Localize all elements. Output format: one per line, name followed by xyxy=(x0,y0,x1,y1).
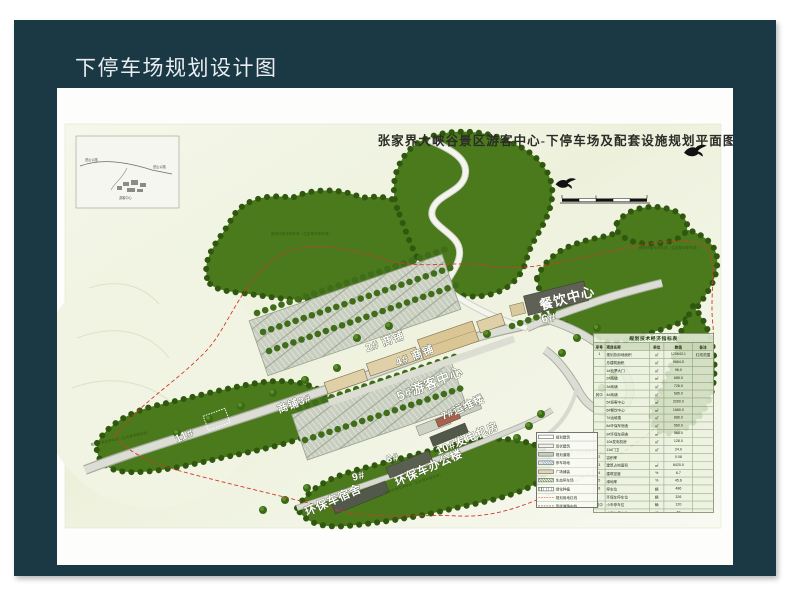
legend-swatch-dash-red xyxy=(538,497,554,498)
table-cell: 单位 xyxy=(650,343,665,350)
legend-item: 规划道路 xyxy=(537,450,597,459)
legend-swatch-solid-gray xyxy=(538,452,554,456)
table-row: 2容积率0.08 xyxy=(594,454,713,462)
annotation: 规划环保车停车场（生态草坪停车场） xyxy=(639,245,700,250)
table-cell: ㎡ xyxy=(650,462,665,469)
legend-label: 绿化种植 xyxy=(556,486,570,491)
table-cell: 备注 xyxy=(693,343,713,350)
table-cell xyxy=(693,359,713,366)
table-cell: 11#门卫 xyxy=(605,446,650,453)
table-cell: ㎡ xyxy=(650,406,665,413)
legend-item: 现状建筑 xyxy=(537,442,597,451)
legend-list: 规划建筑现状建筑规划道路停车场地广场铺装生态停车场绿化种植规划用地红线现状道路中… xyxy=(537,433,597,507)
legend-label: 规划建筑 xyxy=(556,434,570,439)
table-cell xyxy=(693,438,713,445)
legend-panel: 规划建筑现状建筑规划道路停车场地广场铺装生态停车场绿化种植规划用地红线现状道路中… xyxy=(536,432,598,508)
legend-item: 绿化种植 xyxy=(537,485,597,494)
table-cell xyxy=(693,509,713,513)
table-cell xyxy=(594,406,605,413)
table-row: 环保车停车位辆326 xyxy=(594,493,713,501)
table-cell: 40 xyxy=(664,509,693,513)
table-cell xyxy=(693,446,713,453)
table-cell: 486 xyxy=(664,485,693,492)
legend-label: 现状道路中线 xyxy=(556,503,578,508)
table-row: 5#游客中心㎡3260.0 xyxy=(594,398,713,406)
table-cell: 3260.0 xyxy=(664,398,693,405)
table-cell: 红线范围 xyxy=(693,351,713,358)
table-cell: 辆 xyxy=(650,501,665,508)
table-cell xyxy=(693,493,713,500)
slide-title: 下停车场规划设计图 xyxy=(75,52,278,82)
table-cell: 2#商铺 xyxy=(605,375,650,382)
table-row: 10#发电机房㎡128.0 xyxy=(594,438,713,446)
table-cell xyxy=(693,367,713,374)
table-cell: 建筑占地面积 xyxy=(605,462,650,469)
inset-label: 进山公路 xyxy=(153,164,167,169)
table-cell: 辆 xyxy=(650,485,665,492)
table-cell: ㎡ xyxy=(650,398,665,405)
table-cell: ㎡ xyxy=(650,367,665,374)
table-cell: 1#检票大门 xyxy=(605,367,650,374)
table-cell xyxy=(693,454,713,461)
table-cell: 3#商铺 xyxy=(605,383,650,390)
inset-label: 进山公路 xyxy=(85,157,99,162)
legend-swatch-solid-tan xyxy=(538,469,554,473)
table-header-row: 序号项目名称单位数值备注 xyxy=(594,343,713,351)
table-cell: 大巴车停车位 xyxy=(605,509,650,513)
table-cell: 10#发电机房 xyxy=(605,438,650,445)
table-cell: 8#环保车宿舍 xyxy=(605,422,650,429)
table-cell: 4#商铺 xyxy=(605,390,650,397)
table-cell: 小车停车位 xyxy=(605,501,650,508)
table-cell: 685.0 xyxy=(664,375,693,382)
table-cell: 辆 xyxy=(650,509,665,513)
legend-label: 规划用地红线 xyxy=(556,495,578,500)
table-cell: % xyxy=(650,478,665,485)
table-cell xyxy=(693,485,713,492)
table-cell: 9664.5 xyxy=(664,359,693,366)
table-cell: 规划总用地面积 xyxy=(605,351,650,358)
legend-swatch-solid-white2 xyxy=(538,444,554,448)
table-row: 3建筑占地面积㎡8420.0 xyxy=(594,462,713,470)
table-row: 其中小车停车位辆120 xyxy=(594,501,713,509)
table-cell xyxy=(594,359,605,366)
table-cell xyxy=(650,454,665,461)
table-cell xyxy=(693,462,713,469)
table-cell xyxy=(693,414,713,421)
table-cell: 1680.0 xyxy=(664,406,693,413)
table-cell xyxy=(693,501,713,508)
table-cell xyxy=(693,406,713,413)
table-cell xyxy=(594,509,605,513)
legend-swatch-hatch-blue xyxy=(538,461,554,465)
table-cell xyxy=(693,422,713,429)
table-cell xyxy=(594,398,605,405)
legend-label: 现状建筑 xyxy=(556,443,570,448)
table-row: 5绿地率%45.6 xyxy=(594,478,713,486)
table-cell: ㎡ xyxy=(650,383,665,390)
table-cell: 序号 xyxy=(594,343,605,350)
table-cell xyxy=(693,390,713,397)
table-cell xyxy=(693,398,713,405)
table-body: 序号项目名称单位数值备注1规划总用地面积㎡125643.1红线范围总建筑面积㎡9… xyxy=(594,342,713,513)
table-cell: 建筑密度 xyxy=(605,470,650,477)
table-row: 1规划总用地面积㎡125643.1红线范围 xyxy=(594,351,713,359)
table-cell xyxy=(693,478,713,485)
table-row: 11#门卫㎡24.0 xyxy=(594,446,713,454)
table-row: 8#环保车宿舍㎡560.0 xyxy=(594,422,713,430)
table-cell xyxy=(693,383,713,390)
legend-swatch-solid-white xyxy=(538,435,554,439)
table-row: 6#餐饮中心㎡1680.0 xyxy=(594,406,713,414)
legend-swatch-lines-green xyxy=(538,487,554,491)
table-cell xyxy=(594,367,605,374)
table-cell: 560.0 xyxy=(664,422,693,429)
table-cell: 6#餐饮中心 xyxy=(605,406,650,413)
table-cell: 绿地率 xyxy=(605,478,650,485)
table-cell: ㎡ xyxy=(650,414,665,421)
table-cell: 8420.0 xyxy=(664,462,693,469)
map-title: 张家界大峡谷景区游客中心-下停车场及配套设施规划平面图 xyxy=(378,133,733,148)
table-cell: 停车位 xyxy=(605,485,650,492)
table-cell xyxy=(693,430,713,437)
table-cell: 0.08 xyxy=(664,454,693,461)
table-row: 4建筑密度%6.7 xyxy=(594,470,713,478)
table-cell: ㎡ xyxy=(650,422,665,429)
table-cell: ㎡ xyxy=(650,438,665,445)
table-cell: ㎡ xyxy=(650,430,665,437)
table-row: 6停车位辆486 xyxy=(594,485,713,493)
table-cell: 886.0 xyxy=(664,414,693,421)
legend-item: 规划用地红线 xyxy=(537,493,597,502)
table-cell: 其中 xyxy=(594,390,605,397)
table-cell: 326 xyxy=(664,493,693,500)
page: { "slide": { "title": "下停车场规划设计图" }, "ma… xyxy=(0,0,800,600)
table-row: 1#检票大门㎡96.0 xyxy=(594,367,713,375)
table-cell: 1 xyxy=(594,351,605,358)
table-cell: 128.0 xyxy=(664,438,693,445)
table-cell xyxy=(693,375,713,382)
table-cell: ㎡ xyxy=(650,375,665,382)
legend-label: 规划道路 xyxy=(556,452,570,457)
legend-item: 停车场地 xyxy=(537,459,597,468)
legend-label: 广场铺装 xyxy=(556,469,570,474)
table-cell: 数值 xyxy=(664,343,693,350)
table-cell: ㎡ xyxy=(650,359,665,366)
table-cell: ㎡ xyxy=(650,446,665,453)
table-cell: 辆 xyxy=(650,493,665,500)
table-cell: 环保车停车位 xyxy=(605,493,650,500)
table-row: 大巴车停车位辆40 xyxy=(594,509,713,513)
legend-item: 生态停车场 xyxy=(537,476,597,485)
legend-item: 现状道路中线 xyxy=(537,502,597,508)
inset-label: 游客中心 xyxy=(119,195,133,200)
table-cell: 6.7 xyxy=(664,470,693,477)
table-row: 总建筑面积㎡9664.5 xyxy=(594,359,713,367)
legend-swatch-hatch-green xyxy=(538,478,554,482)
slide-canvas: 餐饮中心 6# 2# 商铺 4# 商铺 5#游客中心 7#运维楼 10#发电机房… xyxy=(57,88,733,565)
table-cell xyxy=(594,422,605,429)
legend-swatch-dash-dark xyxy=(538,506,554,507)
table-cell: 96.0 xyxy=(664,367,693,374)
indicator-table: 规划技术经济指标表 序号项目名称单位数值备注1规划总用地面积㎡125643.1红… xyxy=(593,333,714,513)
table-cell: 125643.1 xyxy=(664,351,693,358)
table-cell xyxy=(693,470,713,477)
table-cell: 726.0 xyxy=(664,383,693,390)
legend-item: 规划建筑 xyxy=(537,433,597,442)
table-cell: 容积率 xyxy=(605,454,650,461)
table-cell: ㎡ xyxy=(650,351,665,358)
table-row: 9#环保车宿舍㎡560.0 xyxy=(594,430,713,438)
table-cell: 560.0 xyxy=(664,430,693,437)
table-row: 2#商铺㎡685.0 xyxy=(594,375,713,383)
table-cell: 9#环保车宿舍 xyxy=(605,430,650,437)
table-cell: 685.0 xyxy=(664,390,693,397)
table-title: 规划技术经济指标表 xyxy=(594,334,713,342)
table-row: 其中4#商铺㎡685.0 xyxy=(594,390,713,398)
inset-map: 进山公路 进山公路 游客中心 xyxy=(76,136,179,208)
table-cell xyxy=(594,375,605,382)
table-cell: 总建筑面积 xyxy=(605,359,650,366)
table-cell: 120 xyxy=(664,501,693,508)
legend-label: 生态停车场 xyxy=(556,477,574,482)
table-cell xyxy=(594,383,605,390)
table-cell: 24.0 xyxy=(664,446,693,453)
table-cell: % xyxy=(650,470,665,477)
label-6: 6# xyxy=(540,310,556,326)
annotation: 规划环保车停车场（生态草坪停车场） xyxy=(271,231,332,236)
legend-label: 停车场地 xyxy=(556,460,570,465)
legend-item: 广场铺装 xyxy=(537,468,597,477)
table-cell: ㎡ xyxy=(650,390,665,397)
table-cell xyxy=(594,414,605,421)
table-cell: 45.6 xyxy=(664,478,693,485)
table-row: 3#商铺㎡726.0 xyxy=(594,383,713,391)
table-cell: 7#运维楼 xyxy=(605,414,650,421)
table-cell: 项目名称 xyxy=(605,343,650,350)
table-row: 7#运维楼㎡886.0 xyxy=(594,414,713,422)
table-cell: 5#游客中心 xyxy=(605,398,650,405)
